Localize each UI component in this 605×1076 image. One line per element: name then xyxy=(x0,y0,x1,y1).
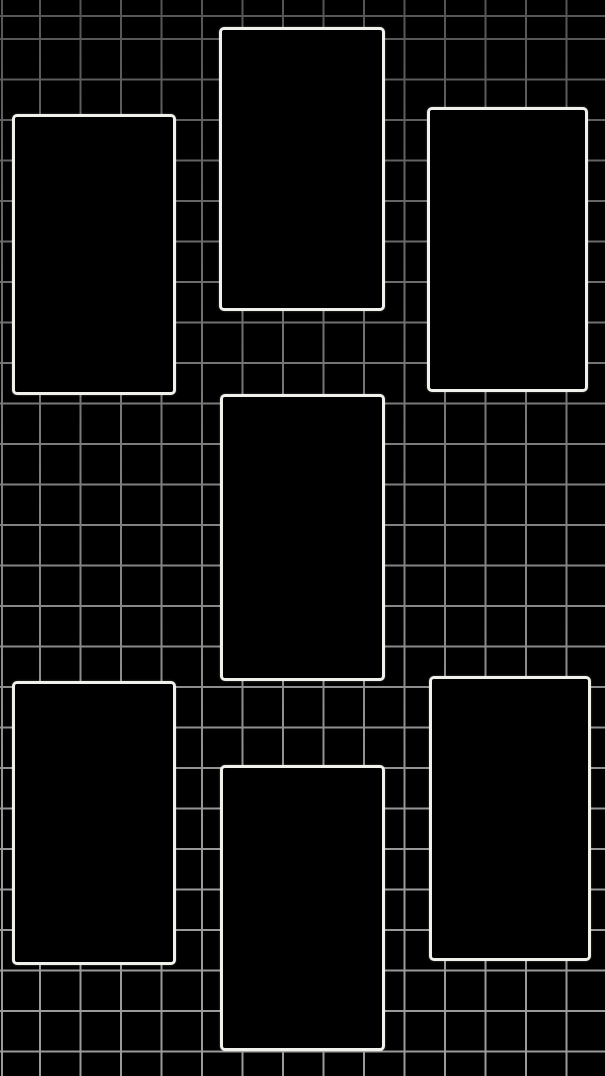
frame-top-center xyxy=(219,27,385,311)
frame-top-left xyxy=(12,114,176,395)
frame-middle-center xyxy=(220,394,385,681)
frame-bottom-center xyxy=(220,765,385,1051)
frame-top-right xyxy=(427,107,588,392)
frame-bottom-left xyxy=(12,681,176,965)
collage-canvas xyxy=(0,0,605,1076)
frame-bottom-right xyxy=(429,676,591,961)
frames-container xyxy=(0,0,605,1076)
